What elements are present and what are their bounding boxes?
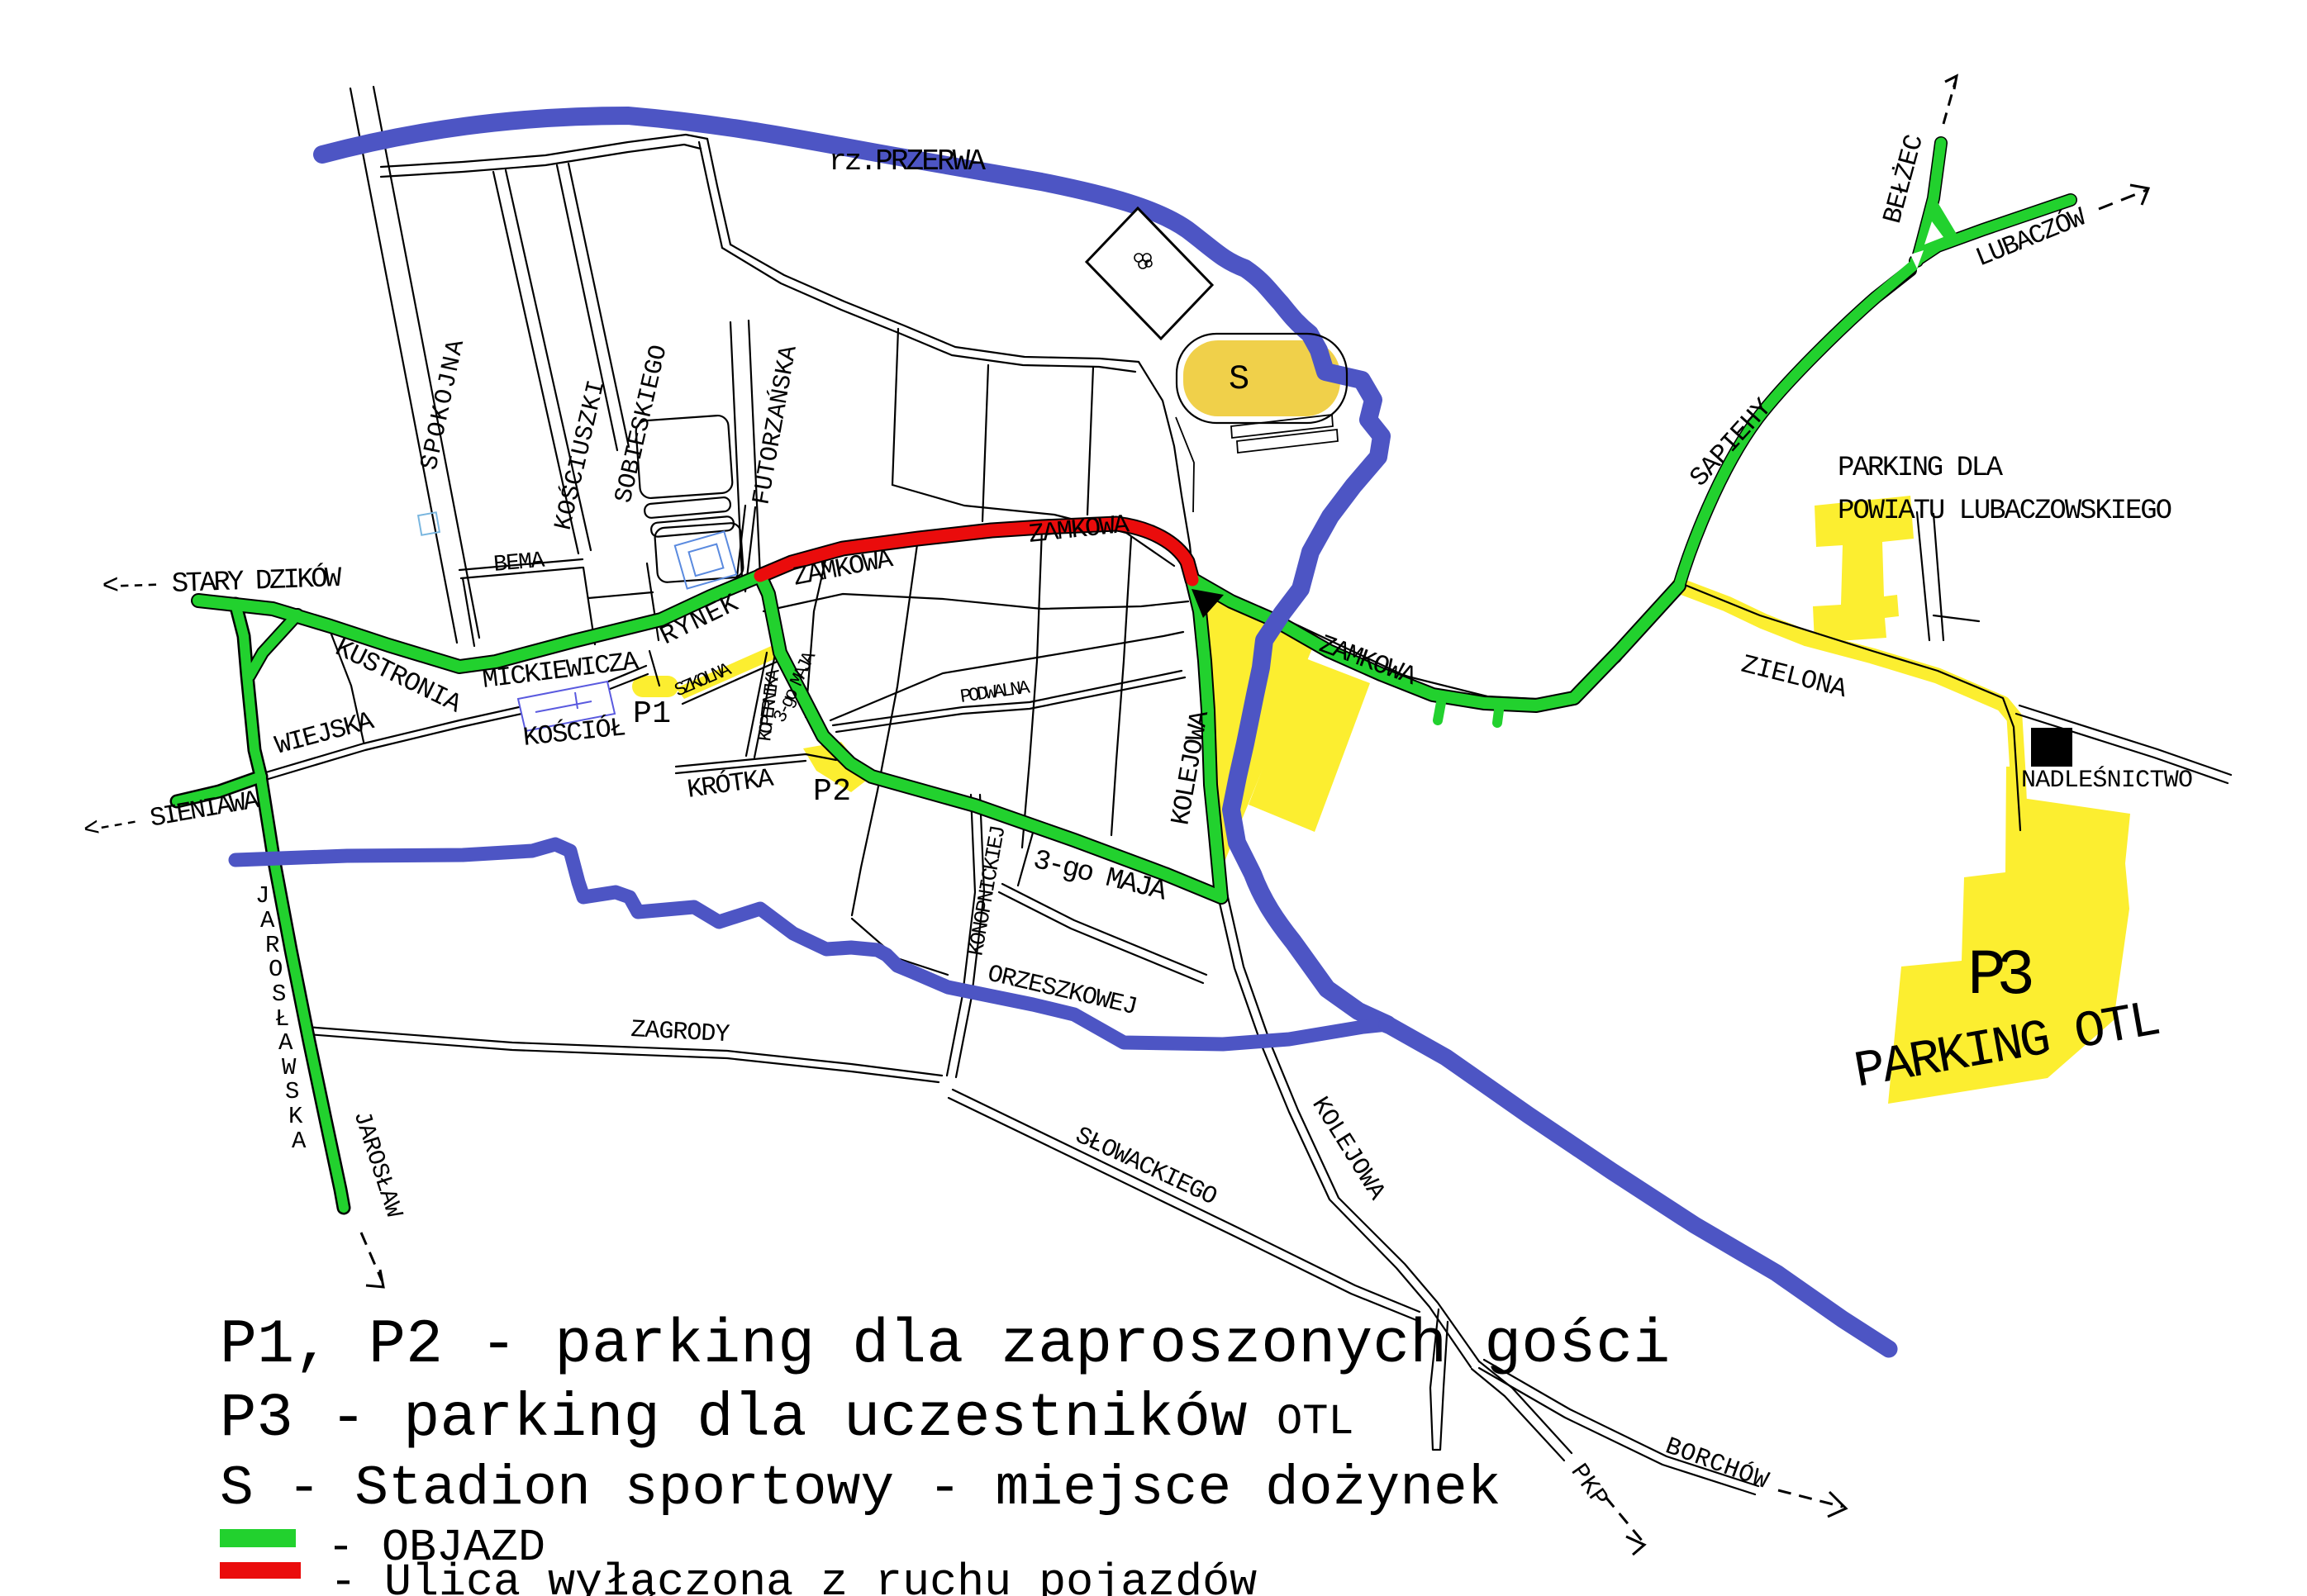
svg-text:P3: P3 <box>1967 940 2035 1013</box>
svg-text:NADLEŚNICTWO: NADLEŚNICTWO <box>2021 766 2193 795</box>
svg-text:S: S <box>285 1078 299 1105</box>
svg-text:S: S <box>272 981 286 1008</box>
svg-text:S - Stadion sportowy - miejsce: S - Stadion sportowy - miejsce dożynek <box>220 1457 1501 1521</box>
svg-text:P3 - parking dla uczestników: P3 - parking dla uczestników <box>220 1385 1247 1454</box>
svg-text:A: A <box>292 1128 307 1155</box>
svg-text:ZAGRODY: ZAGRODY <box>630 1016 730 1049</box>
svg-text:K: K <box>288 1103 303 1130</box>
svg-text:OTL: OTL <box>1277 1398 1354 1446</box>
svg-text:O: O <box>269 956 283 983</box>
svg-text:POWIATU LUBACZOWSKIEGO: POWIATU LUBACZOWSKIEGO <box>1838 496 2172 527</box>
svg-text:J: J <box>255 882 269 910</box>
svg-text:S: S <box>1229 359 1249 399</box>
svg-text:P1, P2 - parking dla zaproszon: P1, P2 - parking dla zaproszonych gości <box>220 1310 1670 1380</box>
svg-text:A: A <box>260 907 275 934</box>
svg-text:P2: P2 <box>813 774 851 810</box>
svg-text:P1: P1 <box>633 696 671 732</box>
svg-text:A: A <box>278 1029 293 1057</box>
svg-text:BEMA: BEMA <box>492 549 546 578</box>
svg-text:PARKING DLA: PARKING DLA <box>1838 453 2004 484</box>
svg-text:- Ulica wyłączona z ruchu poja: - Ulica wyłączona z ruchu pojazdów <box>330 1556 1257 1596</box>
svg-text:rz.PRZERWA: rz.PRZERWA <box>829 145 986 178</box>
